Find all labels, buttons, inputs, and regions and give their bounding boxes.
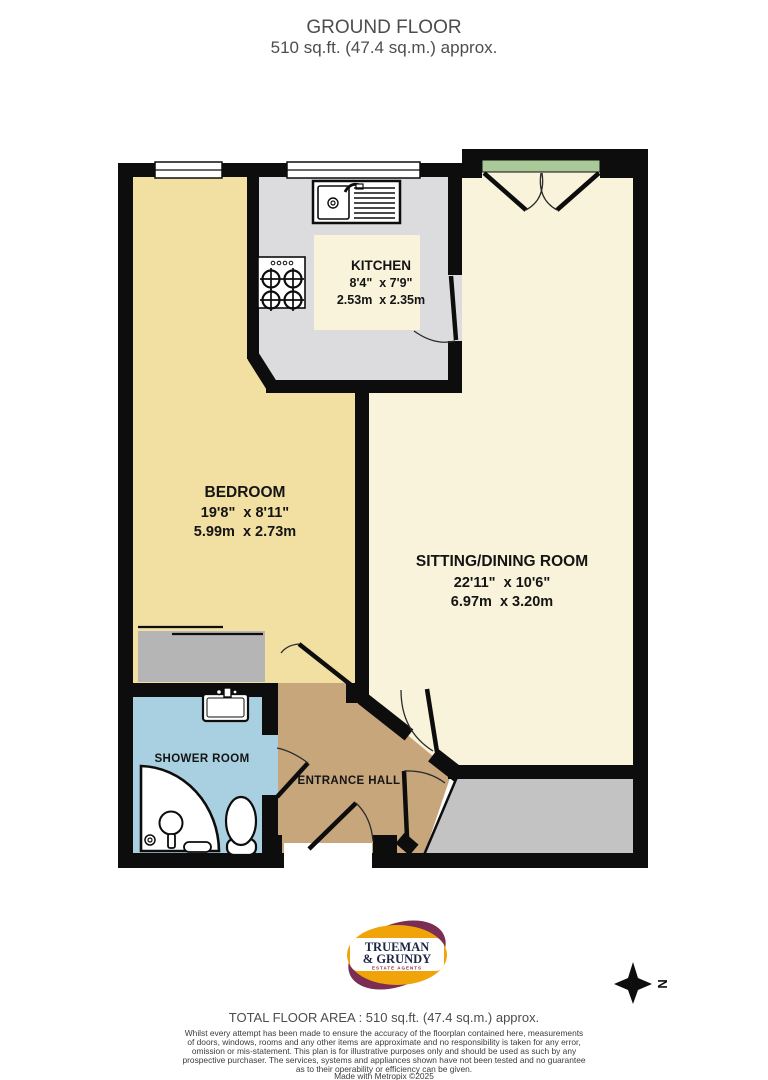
garden-strip <box>482 160 600 172</box>
front-door-opening <box>284 843 372 868</box>
storage-area-floor <box>424 777 640 855</box>
bedroom-label: BEDROOM 19'8" x 8'11" 5.99m x 2.73m <box>194 484 296 540</box>
front-door-jamb-left <box>267 835 282 868</box>
floor-title: GROUND FLOOR <box>306 17 461 38</box>
wall-sitting-storage <box>448 765 648 779</box>
wall-bay-step <box>462 149 482 178</box>
wall-bay-corner <box>600 149 648 178</box>
svg-text:6.97m x 3.20m: 6.97m x 3.20m <box>451 594 553 610</box>
entrance-hall-label: ENTRANCE HALL <box>298 775 401 787</box>
svg-text:SITTING/DINING ROOM: SITTING/DINING ROOM <box>416 553 588 570</box>
metropix-credit: Made with Metropix ©2025 <box>334 1071 434 1080</box>
floorplan-page: GROUND FLOOR 510 sq.ft. (47.4 sq.m.) app… <box>0 0 768 1080</box>
wall-bottom-right <box>372 853 648 868</box>
floor-area-subtitle: 510 sq.ft. (47.4 sq.m.) approx. <box>271 38 498 57</box>
kitchen-window <box>287 162 420 178</box>
svg-text:5.99m x 2.73m: 5.99m x 2.73m <box>194 524 296 540</box>
wall-bedroom-sitting <box>355 387 369 703</box>
front-door-jamb-right <box>373 835 397 868</box>
svg-text:22'11" x 10'6": 22'11" x 10'6" <box>454 575 550 591</box>
page-title: GROUND FLOOR 510 sq.ft. (47.4 sq.m.) app… <box>271 17 498 57</box>
wall-bottom-left <box>118 853 284 868</box>
wash-basin <box>203 688 248 721</box>
logo-name-line2: & GRUNDY <box>363 952 431 966</box>
toilet <box>226 797 256 855</box>
north-label: N <box>655 979 670 988</box>
wall-kitchen-right-upper <box>448 177 462 275</box>
shower-room-label: SHOWER ROOM <box>154 753 249 765</box>
wall-kitchen-right-lower <box>448 341 462 393</box>
svg-text:BEDROOM: BEDROOM <box>205 484 286 501</box>
svg-text:19'8" x 8'11": 19'8" x 8'11" <box>201 505 289 521</box>
kitchen-sink <box>313 181 400 223</box>
wardrobe <box>138 627 265 682</box>
svg-text:KITCHEN: KITCHEN <box>351 258 411 273</box>
bedroom-window <box>155 162 222 178</box>
hob <box>258 257 305 311</box>
total-floor-area: TOTAL FLOOR AREA : 510 sq.ft. (47.4 sq.m… <box>229 1010 539 1025</box>
compass: N <box>614 962 670 1004</box>
footer: TOTAL FLOOR AREA : 510 sq.ft. (47.4 sq.m… <box>182 1010 585 1080</box>
svg-text:8'4" x 7'9": 8'4" x 7'9" <box>350 276 413 290</box>
logo-tagline: ESTATE AGENTS <box>372 966 422 971</box>
sink-drainer <box>354 188 395 218</box>
wall-right <box>633 163 648 868</box>
wall-left <box>118 163 133 868</box>
storage-door-jamb <box>400 838 414 850</box>
svg-text:2.53m x 2.35m: 2.53m x 2.35m <box>337 293 425 307</box>
wall-shower-right-upper <box>262 697 278 735</box>
agency-logo: TRUEMAN & GRUNDY ESTATE AGENTS <box>338 907 456 1003</box>
north-star-icon <box>614 962 652 1004</box>
wall-bedroom-bottom <box>118 683 278 697</box>
